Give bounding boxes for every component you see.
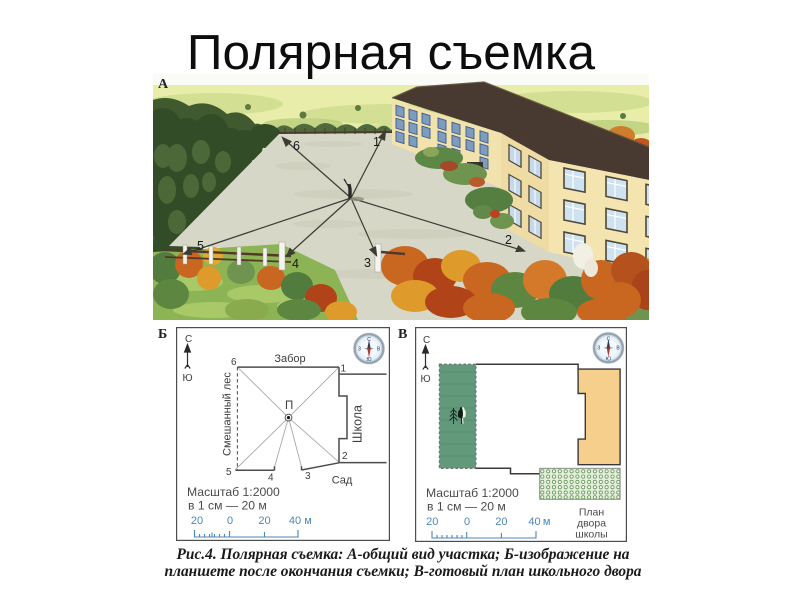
svg-text:Школа: Школа <box>351 405 365 443</box>
svg-text:Смешанный лес: Смешанный лес <box>222 372 234 456</box>
svg-text:6: 6 <box>293 139 300 153</box>
svg-text:С: С <box>423 335 430 346</box>
svg-text:5: 5 <box>226 467 232 478</box>
svg-text:20: 20 <box>191 515 203 527</box>
svg-text:1: 1 <box>341 364 347 375</box>
svg-text:С: С <box>185 334 192 345</box>
svg-text:Ю: Ю <box>606 356 611 362</box>
svg-text:школы: школы <box>575 529 607 541</box>
svg-text:2: 2 <box>342 451 348 462</box>
svg-text:20: 20 <box>495 516 507 528</box>
svg-text:в 1 см — 20 м: в 1 см — 20 м <box>427 500 506 514</box>
svg-text:4: 4 <box>292 257 299 271</box>
svg-text:4: 4 <box>268 473 274 484</box>
svg-text:З: З <box>597 346 600 352</box>
svg-text:м: м <box>543 516 551 528</box>
svg-text:5: 5 <box>197 239 204 253</box>
svg-text:Ю: Ю <box>183 373 193 384</box>
svg-text:П: П <box>285 400 293 412</box>
svg-text:Забор: Забор <box>274 353 305 365</box>
svg-text:Масштаб 1:2000: Масштаб 1:2000 <box>426 486 519 500</box>
svg-text:6: 6 <box>231 357 237 368</box>
svg-text:м: м <box>304 515 312 527</box>
svg-text:З: З <box>358 346 361 352</box>
svg-text:20: 20 <box>258 515 270 527</box>
svg-text:Сад: Сад <box>332 475 353 487</box>
svg-text:Ю: Ю <box>421 374 431 385</box>
svg-text:Масштаб 1:2000: Масштаб 1:2000 <box>187 485 280 499</box>
svg-text:в 1 см — 20 м: в 1 см — 20 м <box>188 499 267 513</box>
svg-text:40: 40 <box>289 515 301 527</box>
svg-text:1: 1 <box>373 135 380 149</box>
svg-text:40: 40 <box>528 516 540 528</box>
svg-text:0: 0 <box>464 516 470 528</box>
svg-text:3: 3 <box>305 471 311 482</box>
svg-text:Ю: Ю <box>366 357 371 363</box>
svg-text:0: 0 <box>227 515 233 527</box>
svg-text:20: 20 <box>426 516 438 528</box>
svg-text:2: 2 <box>505 233 512 247</box>
svg-text:3: 3 <box>364 256 371 270</box>
